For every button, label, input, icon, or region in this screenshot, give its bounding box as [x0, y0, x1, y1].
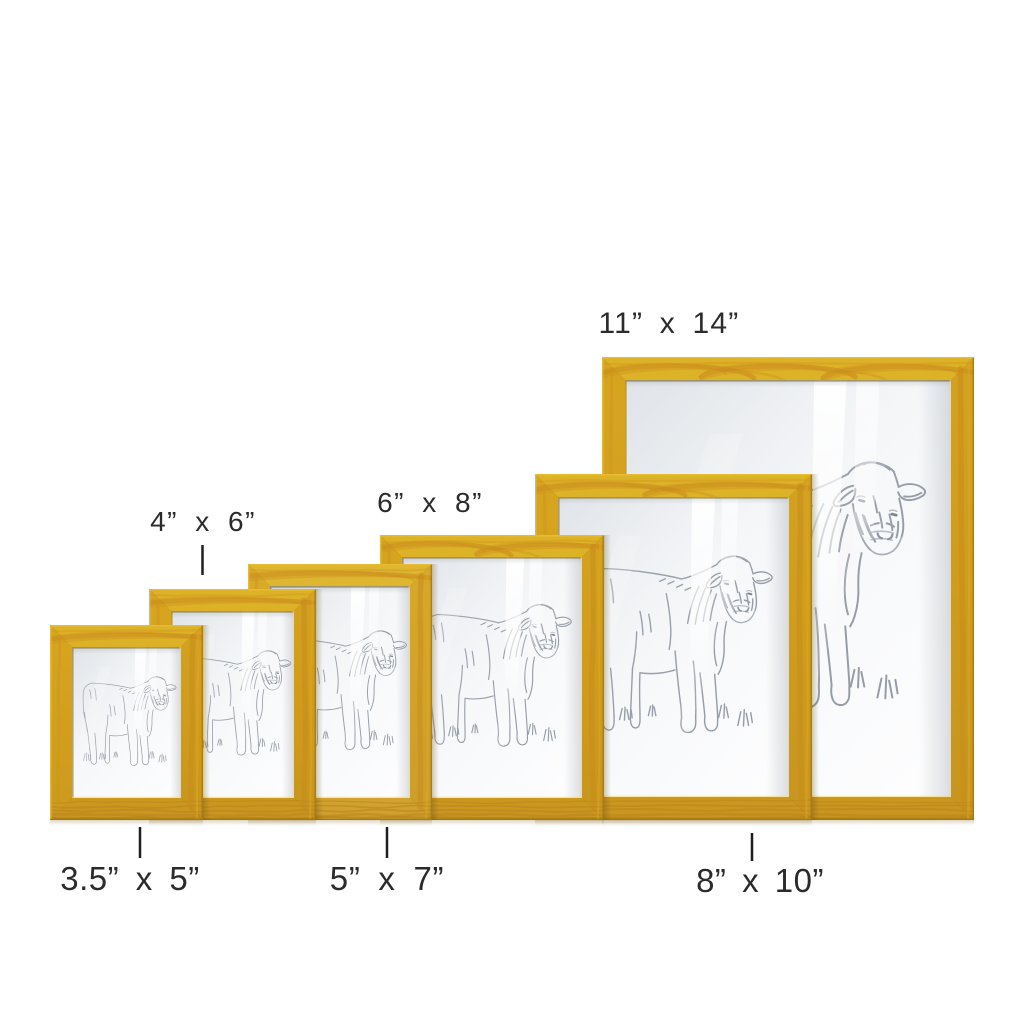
- svg-text:4” x 6”: 4” x 6”: [150, 506, 256, 537]
- svg-text:6” x 8”: 6” x 8”: [377, 487, 483, 518]
- svg-text:5” x 7”: 5” x 7”: [330, 860, 444, 897]
- svg-text:3.5” x 5”: 3.5” x 5”: [60, 860, 200, 897]
- svg-text:11” x 14”: 11” x 14”: [599, 307, 740, 340]
- svg-text:8” x 10”: 8” x 10”: [696, 862, 824, 899]
